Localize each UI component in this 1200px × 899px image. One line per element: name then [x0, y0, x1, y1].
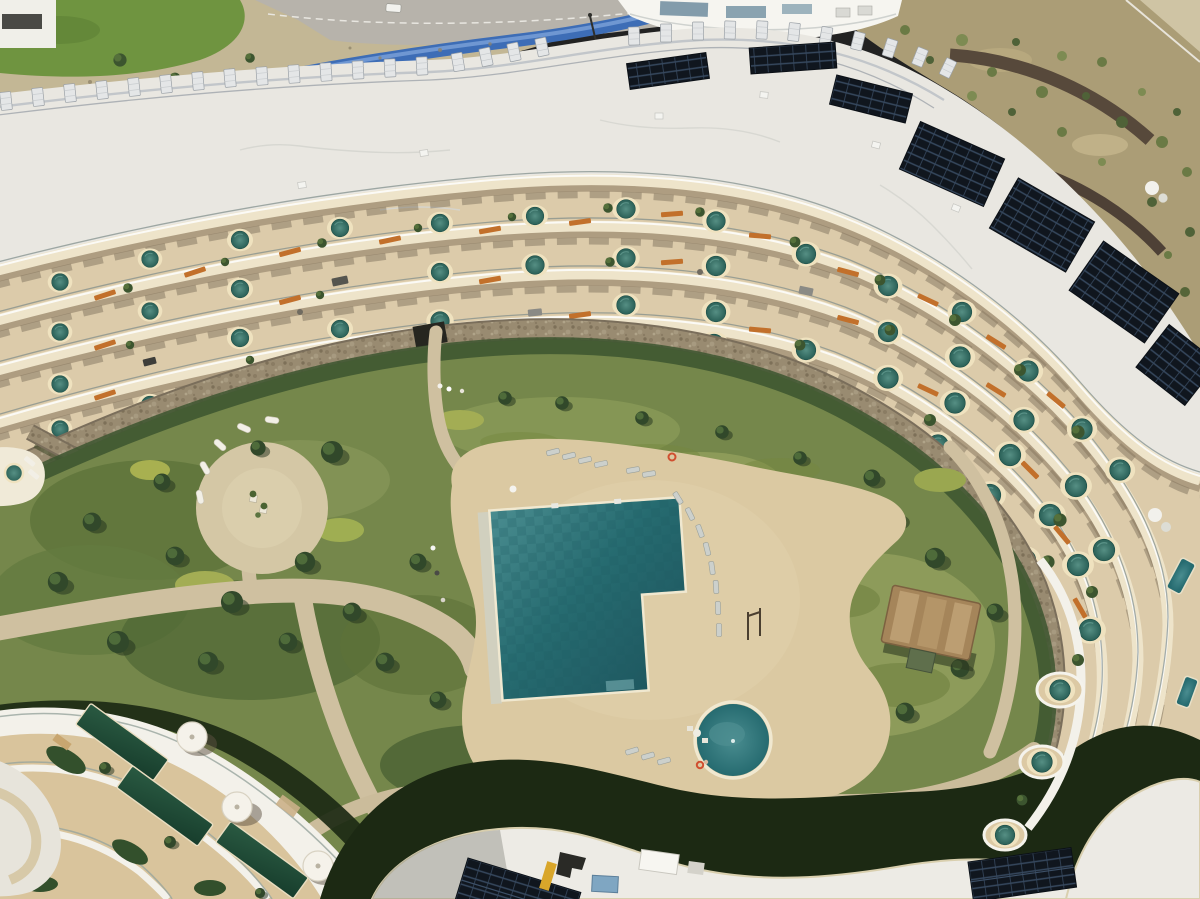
tower-glazing — [660, 1, 708, 17]
poolside-table — [693, 729, 701, 737]
plunge-pool — [940, 390, 970, 416]
plunge-pool — [945, 344, 975, 370]
person — [431, 546, 436, 551]
plunge-pool — [1009, 407, 1039, 433]
daybed — [1148, 508, 1162, 522]
person — [441, 598, 446, 603]
person — [435, 571, 440, 576]
plunge-pool — [702, 209, 730, 233]
person — [438, 384, 443, 389]
roof-box — [687, 861, 705, 875]
street-lamp-head — [588, 13, 592, 17]
plunge-pool — [612, 293, 640, 317]
roadside-shrub — [113, 53, 126, 66]
plunge-pool — [327, 318, 353, 341]
plunge-pool — [1060, 472, 1092, 500]
plunge-pool — [48, 321, 73, 342]
plunge-pool — [227, 278, 253, 301]
plunge-pool — [5, 464, 23, 482]
plunge-pool — [1088, 536, 1120, 564]
person — [704, 760, 708, 764]
tower-glazing — [726, 6, 766, 18]
plunge-pool — [1027, 749, 1057, 775]
person — [447, 387, 452, 392]
aerial-photo-canvas — [0, 0, 1200, 899]
solar-array — [749, 42, 837, 74]
plunge-pool — [1105, 457, 1135, 483]
plunge-pool — [612, 246, 640, 270]
parked-car — [386, 4, 402, 13]
tower-glazing — [782, 4, 812, 14]
plunge-pool — [522, 205, 548, 228]
plunge-pool — [138, 248, 163, 269]
plunge-pool — [48, 271, 73, 292]
plunge-pool — [427, 261, 453, 284]
plunge-pool — [702, 300, 731, 325]
daybed — [1161, 522, 1171, 532]
pool-steps — [606, 679, 635, 691]
tower-ac-unit — [858, 6, 872, 15]
plunge-pool — [427, 212, 453, 235]
plunge-pool — [612, 197, 640, 221]
plunge-pool — [873, 365, 903, 391]
plunge-pool — [991, 823, 1020, 848]
pool-ladder — [551, 503, 558, 508]
plunge-pool — [138, 300, 163, 321]
plunge-pool — [1045, 677, 1075, 703]
tower-ac-unit — [836, 8, 850, 17]
roadside-shrub — [245, 53, 255, 63]
aerial-photo — [0, 0, 1200, 899]
poolside-chair — [687, 726, 693, 731]
plunge-pool — [327, 217, 353, 240]
plunge-pool — [702, 254, 731, 279]
person — [460, 389, 464, 393]
hill-sand-patch — [1072, 134, 1128, 156]
plunge-pool — [227, 327, 253, 350]
plunge-pool — [521, 253, 549, 277]
plunge-pool — [48, 373, 73, 394]
plunge-pool — [227, 229, 253, 252]
parasol — [510, 486, 517, 493]
plunge-pool — [1062, 551, 1094, 579]
poolside-chair — [702, 738, 708, 743]
neighbor-building-glazing — [2, 14, 42, 29]
skylight — [592, 875, 619, 892]
pool-ladder — [614, 499, 621, 504]
